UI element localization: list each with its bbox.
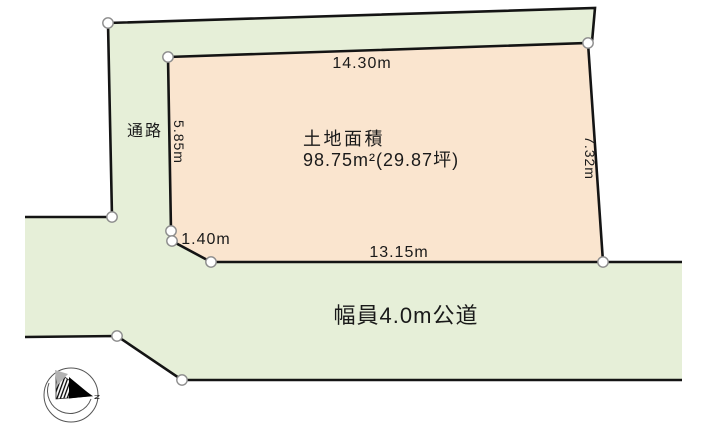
dimension-right: 7.32m [583,136,597,180]
compass-north-label: N [93,394,100,399]
dimension-notch: 1.40m [181,232,230,248]
survey-point [583,38,593,48]
passage-label: 通路 [127,124,163,140]
survey-point [598,257,608,267]
land-area-title: 土地面積 [303,129,459,150]
land-area-label: 土地面積 98.75m²(29.87坪) [303,129,459,171]
dimension-bottom: 13.15m [369,245,428,261]
survey-point [177,375,187,385]
survey-point [112,331,122,341]
road-label: 幅員4.0m公道 [334,305,479,327]
dimension-top: 14.30m [332,56,391,72]
survey-point [163,52,173,62]
land-plot-diagram: N 14.30m 5.85m 7.32m 1.40m 13.15m 通路 土地面… [0,0,703,432]
survey-point [107,212,117,222]
survey-point [103,18,113,28]
compass-icon: N [44,368,100,422]
survey-point [206,257,216,267]
dimension-left: 5.85m [172,120,186,164]
survey-point [167,236,177,246]
survey-point [166,226,176,236]
land-area-value: 98.75m²(29.87坪) [303,150,459,171]
